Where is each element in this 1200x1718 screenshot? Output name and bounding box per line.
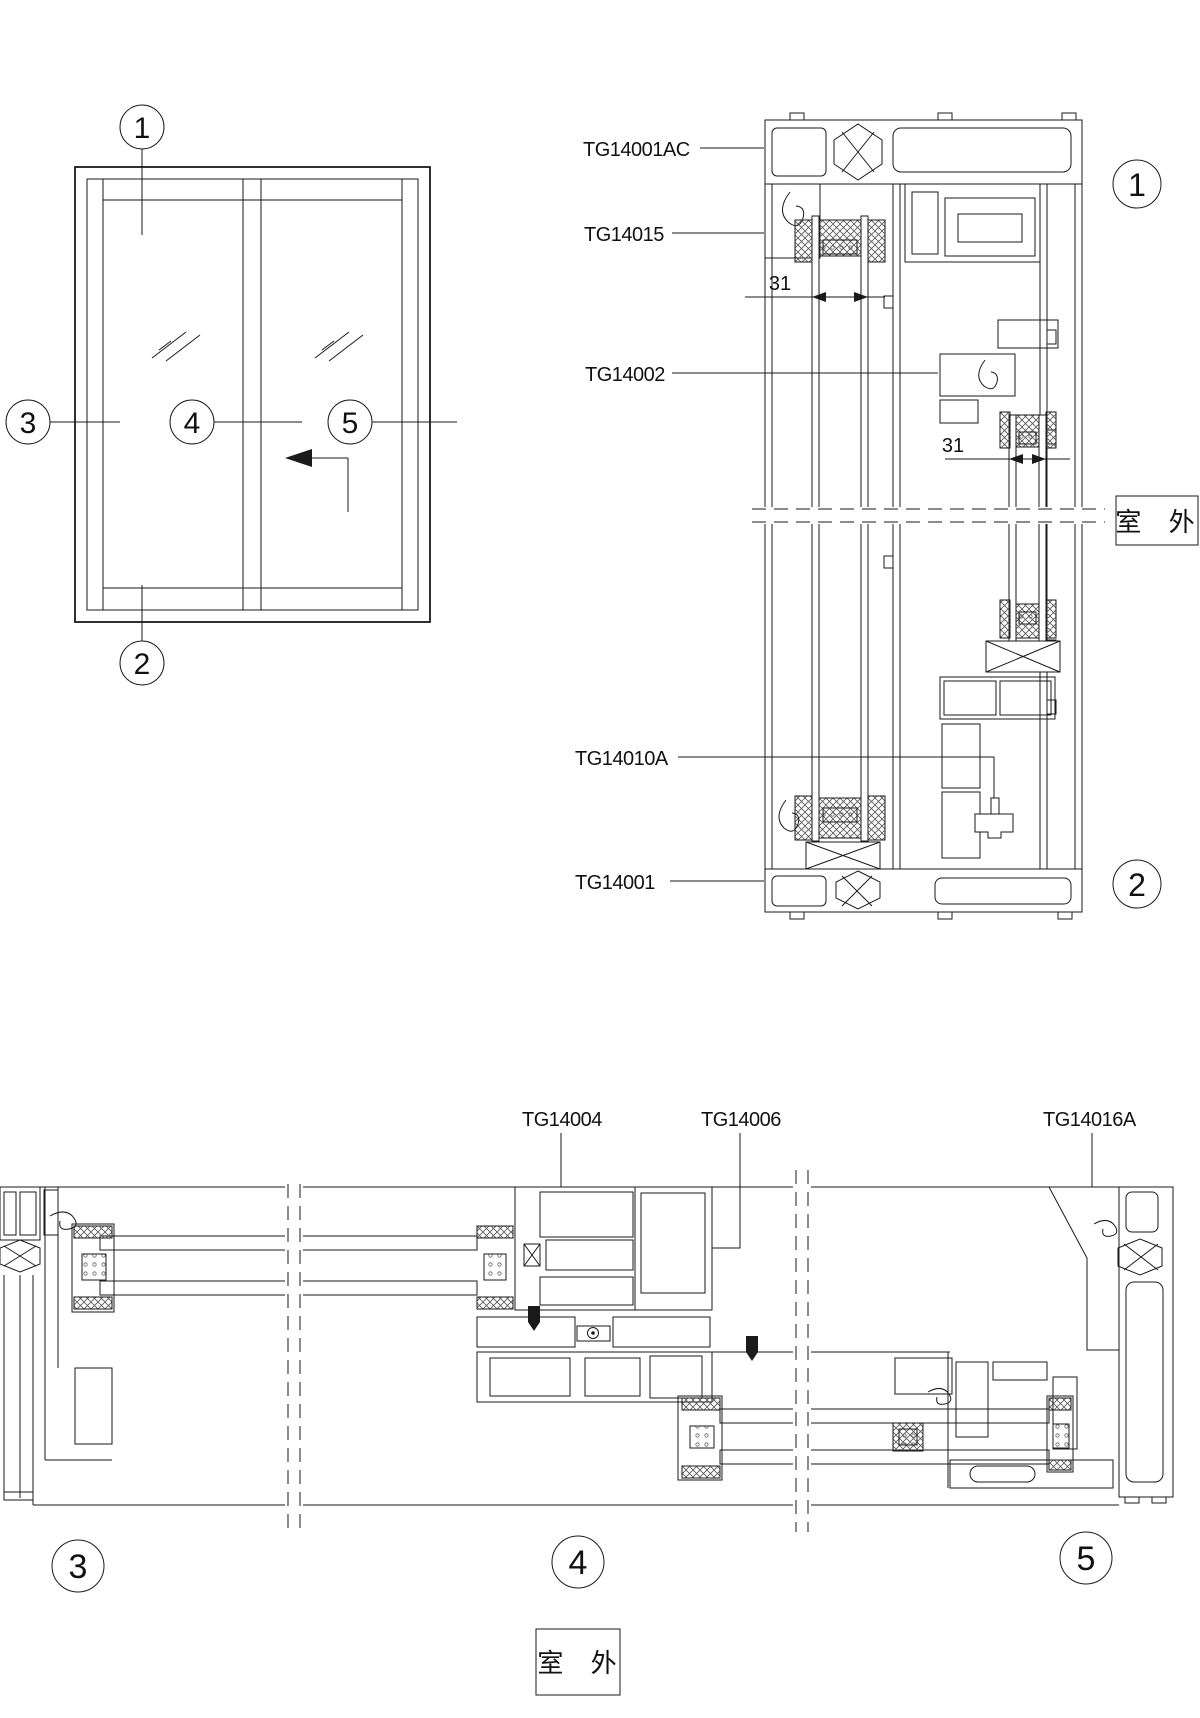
horizontal-section: TG14004 TG14006 TG14016A 3 4 5 室 外: [0, 1109, 1173, 1695]
head-profile-tg14001ac: [765, 113, 1082, 184]
hs-marker-5: 5: [1060, 1532, 1112, 1584]
outdoor-label-text-bottom: 室 外: [537, 1648, 626, 1678]
marker-5-number: 5: [342, 407, 359, 440]
dim-lower-value: 31: [942, 435, 964, 457]
sill-profile-tg14001: [765, 869, 1082, 919]
vs-marker-1-number: 1: [1128, 167, 1146, 203]
marker-1-number: 1: [134, 112, 151, 145]
outdoor-label-text: 室 外: [1115, 507, 1200, 537]
label-tg14006: TG14006: [701, 1109, 781, 1131]
vertical-section: 31: [575, 113, 1200, 919]
glass-unit-1: [779, 216, 885, 869]
marker-3-number: 3: [20, 407, 37, 440]
screw-icon: [746, 1336, 758, 1361]
hs-marker-4: 4: [552, 1536, 604, 1588]
glass-unit-right: [678, 1358, 1073, 1480]
window-elevation: 1 2 3 4 5: [6, 105, 457, 685]
vs-marker-2: 2: [1113, 860, 1161, 908]
label-tg14001ac: TG14001AC: [583, 139, 690, 161]
gasket-curl: [979, 360, 998, 389]
sash-top-rail: [905, 184, 1040, 262]
hs-marker-5-number: 5: [1077, 1540, 1096, 1578]
gasket-curl: [1094, 1220, 1117, 1236]
marker-2-number: 2: [134, 648, 151, 681]
cad-drawing-sheet: 1 2 3 4 5: [0, 0, 1200, 1718]
outdoor-label-box-bottom: 室 外: [536, 1629, 627, 1695]
hs-marker-3: 3: [52, 1540, 104, 1592]
glass-hatch-icon: [315, 332, 363, 361]
slide-direction-arrow-icon: [285, 449, 348, 512]
hs-marker-4-number: 4: [569, 1544, 588, 1582]
outdoor-label-box: 室 外: [1115, 496, 1200, 545]
meeting-stile-tg14004: [515, 1187, 635, 1310]
vs-marker-1: 1: [1113, 160, 1161, 208]
label-tg14010a: TG14010A: [575, 748, 669, 770]
cad-drawing: 1 2 3 4 5: [0, 0, 1200, 1718]
marker-4-number: 4: [184, 407, 201, 440]
vs-break-lines: [750, 507, 1106, 524]
hs-break-lines: [285, 1168, 811, 1534]
label-tg14001: TG14001: [575, 872, 655, 894]
section-marker-2: 2: [120, 585, 164, 685]
glass-unit-2: [986, 412, 1060, 672]
hs-marker-3-number: 3: [69, 1548, 88, 1586]
section-marker-1: 1: [120, 105, 164, 235]
label-tg14015: TG14015: [584, 224, 664, 246]
gasket-curl: [928, 1388, 951, 1404]
dim-upper-value: 31: [769, 273, 791, 295]
elevation-outer-frame: [75, 167, 430, 622]
label-tg14004: TG14004: [522, 1109, 602, 1131]
section-marker-5: 5: [328, 400, 457, 444]
setting-block: [806, 842, 880, 869]
section-marker-4: 4: [170, 400, 302, 444]
vs-marker-2-number: 2: [1128, 867, 1146, 903]
glass-hatch-icon: [152, 332, 200, 361]
clip-tg14010a: [975, 798, 1013, 838]
label-tg14016a: TG14016A: [1043, 1109, 1137, 1131]
elevation-inner-frame: [87, 179, 418, 610]
part-labels-horizontal: TG14004 TG14006 TG14016A: [522, 1109, 1137, 1248]
interlock-tg14006: [477, 1187, 950, 1402]
roller-connector: [577, 1326, 610, 1341]
setting-block: [986, 641, 1060, 672]
label-tg14002: TG14002: [585, 364, 665, 386]
screw-icon: [528, 1306, 540, 1331]
